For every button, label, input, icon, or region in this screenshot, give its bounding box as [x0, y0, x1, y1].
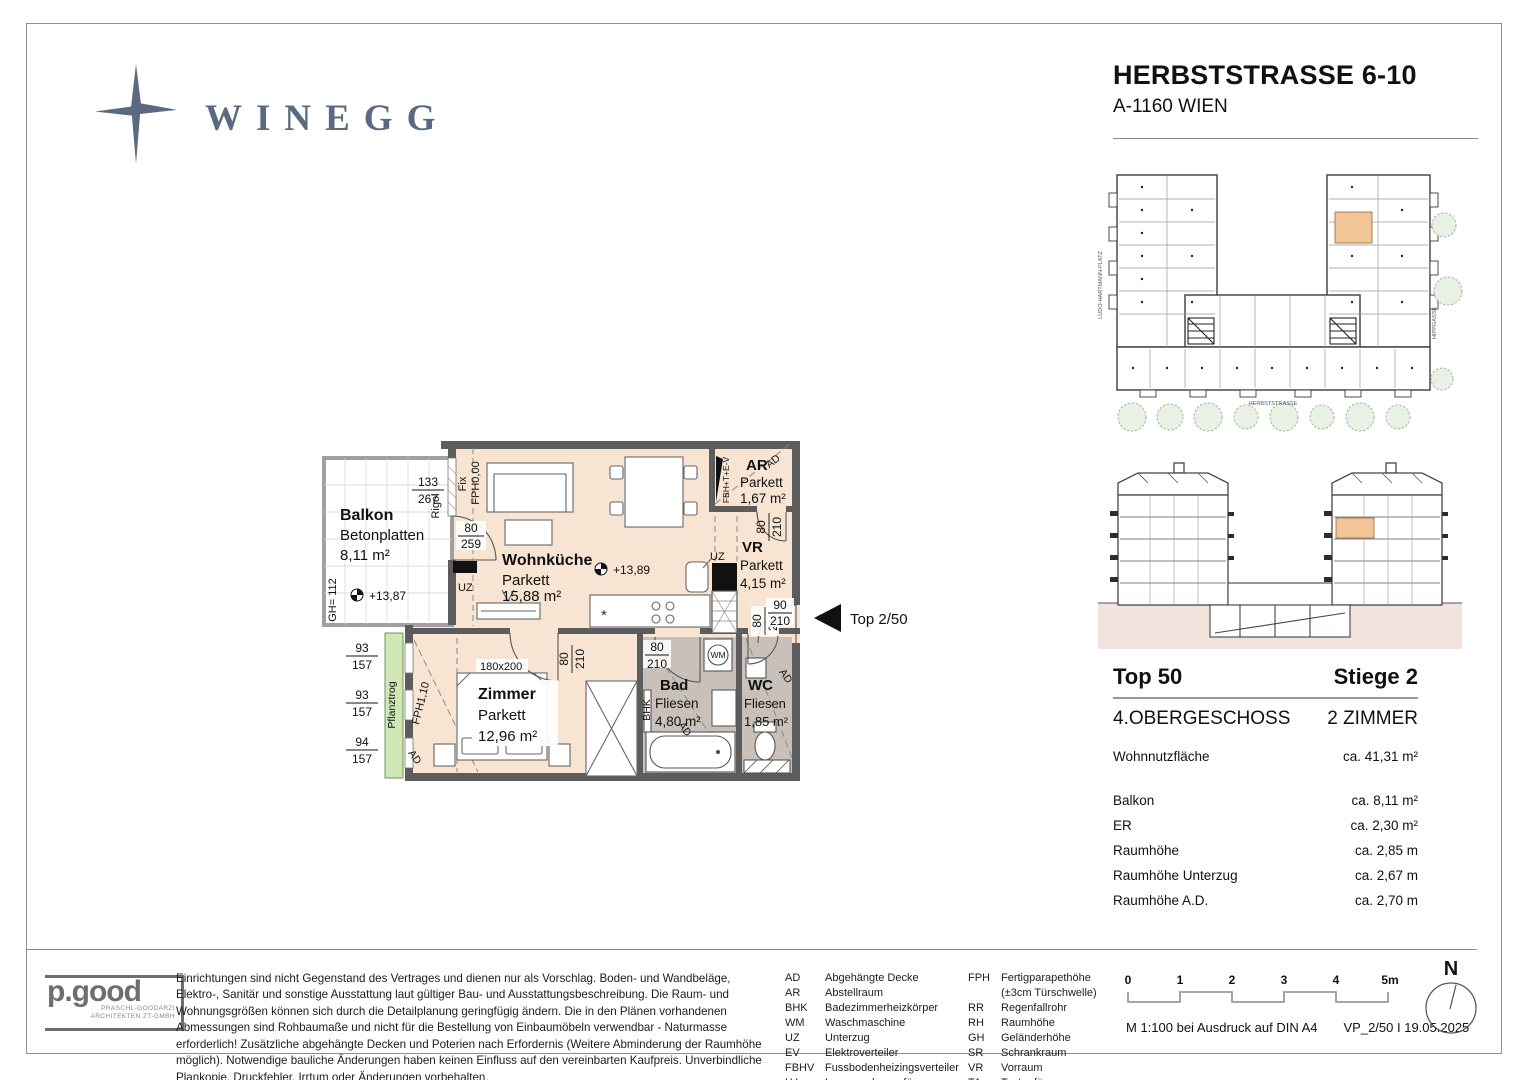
svg-text:+13,87: +13,87: [369, 589, 406, 603]
entrance-label: Top 2/50: [850, 611, 908, 628]
svg-text:93: 93: [355, 641, 369, 655]
brand-name: WINEGG: [205, 97, 449, 140]
svg-text:210: 210: [573, 649, 587, 669]
pflanztrog-label: Pflanztrog: [386, 681, 398, 728]
info-row-raumhoehe-unterzug: Raumhöhe Unterzug ca. 2,67 m: [1113, 868, 1418, 883]
bathtub: [646, 732, 735, 772]
level-marker-living: +13,89: [595, 563, 650, 577]
coffee-table: [505, 520, 552, 545]
winegg-star-icon: [95, 62, 177, 166]
dim-window-2: 93 157: [346, 688, 378, 719]
svg-text:+13,89: +13,89: [613, 563, 650, 577]
scale-bar: 0 1 2 3 4 5m: [1122, 972, 1402, 1012]
svg-text:80: 80: [754, 520, 768, 534]
winegg-logo: WINEGG: [95, 62, 449, 166]
uz-beam-2: [712, 563, 737, 591]
site-plan: LUDO-HARTMANN-PLATZ HERBSTSTRASSE HIPPGA…: [1090, 163, 1470, 448]
site-highlighted-unit: [1335, 212, 1372, 243]
info-row-wohnnutzflaeche: Wohnnutzfläche ca. 41,31 m²: [1113, 749, 1418, 764]
info-row-raumhoehe: Raumhöhe ca. 2,85 m: [1113, 843, 1418, 858]
svg-text:Parkett: Parkett: [502, 572, 550, 589]
room-count: 2 ZIMMER: [1327, 708, 1418, 730]
nightstand-right: [549, 744, 570, 766]
wardrobe: [586, 681, 637, 776]
legend-column-2: FPHFertigparapethöhe (±3cm Türschwelle) …: [968, 971, 1118, 1080]
svg-text:1,67 m²: 1,67 m²: [740, 491, 786, 506]
svg-text:Fliesen: Fliesen: [655, 696, 699, 711]
svg-text:157: 157: [352, 658, 372, 672]
section-center-wing: [1210, 583, 1350, 637]
svg-text:259: 259: [461, 537, 481, 551]
info-row-raumhoehe-ad: Raumhöhe A.D. ca. 2,70 m: [1113, 893, 1418, 908]
rigol-label: Rigol: [430, 493, 442, 518]
architect-name: p.good: [47, 979, 175, 1005]
floor-level: 4.OBERGESCHOSS: [1113, 708, 1290, 730]
kitchen-counter: [590, 595, 710, 627]
svg-text:210: 210: [647, 657, 667, 671]
svg-text:Betonplatten: Betonplatten: [340, 527, 424, 544]
fix-label: Fix: [457, 476, 469, 491]
svg-text:1: 1: [1177, 973, 1184, 987]
svg-text:0: 0: [1125, 973, 1132, 987]
svg-text:157: 157: [352, 752, 372, 766]
north-label: N: [1444, 958, 1458, 980]
footer-divider: [26, 949, 1477, 950]
kitchen-sink: [686, 559, 711, 592]
svg-text:8,11 m²: 8,11 m²: [340, 547, 390, 564]
info-row-balkon: Balkon ca. 8,11 m²: [1113, 793, 1418, 808]
svg-text:94: 94: [355, 735, 369, 749]
svg-text:12,96 m²: 12,96 m²: [478, 728, 537, 745]
shaft: [712, 591, 737, 633]
section-left-tower: [1118, 463, 1228, 605]
architect-logo: p.good PRASCHL-GOODARZI ARCHITEKTEN ZT-G…: [45, 975, 184, 1031]
dishwasher-icon: *: [601, 607, 607, 624]
svg-text:90: 90: [773, 598, 787, 612]
electro-panel-label: FBH+T+E-V: [721, 457, 731, 504]
level-marker-balcony: +13,87: [351, 589, 406, 603]
svg-text:VR: VR: [742, 539, 763, 556]
svg-text:Parkett: Parkett: [740, 475, 783, 490]
svg-text:2: 2: [1229, 973, 1236, 987]
uz-label-2: UZ: [710, 551, 725, 563]
dim-window-3: 94 157: [346, 735, 378, 766]
svg-text:93: 93: [355, 688, 369, 702]
apartment-floor-plan: *: [310, 428, 910, 803]
svg-text:Parkett: Parkett: [740, 558, 783, 573]
svg-text:4: 4: [1333, 973, 1340, 987]
title-divider: [1113, 138, 1478, 139]
street-bottom-label: HERBSTSTRASSE: [1249, 401, 1298, 407]
street-left-label: LUDO-HARTMANN-PLATZ: [1098, 250, 1104, 318]
svg-text:157: 157: [352, 705, 372, 719]
sofa: [487, 463, 573, 512]
svg-text:Zimmer: Zimmer: [478, 686, 536, 703]
svg-text:80: 80: [750, 614, 764, 628]
fph-zero-label: FPH0,00: [470, 461, 482, 504]
svg-text:210: 210: [770, 614, 790, 628]
building-section: [1090, 455, 1470, 660]
svg-text:Fliesen: Fliesen: [744, 696, 786, 711]
staircase: Stiege 2: [1334, 664, 1418, 690]
uz-label-1: UZ: [458, 582, 473, 594]
svg-text:Parkett: Parkett: [478, 707, 526, 724]
project-title: HERBSTSTRASSE 6-10: [1113, 60, 1479, 91]
svg-text:4,15 m²: 4,15 m²: [740, 576, 786, 591]
wc-shaft: [744, 760, 790, 773]
svg-text:Bad: Bad: [660, 677, 688, 694]
unit-info-table: Top 50 Stiege 2 4.OBERGESCHOSS 2 ZIMMER …: [1113, 664, 1418, 908]
plan-sheet: WINEGG HERBSTSTRASSE 6-10 A-1160 WIEN: [0, 0, 1527, 1080]
svg-text:WC: WC: [748, 677, 773, 694]
dim-window-1: 93 157: [346, 641, 378, 672]
street-right-label: HIPPGASSE: [1432, 307, 1438, 340]
svg-text:5m: 5m: [1381, 973, 1398, 987]
svg-text:80: 80: [557, 652, 571, 666]
legend-fph-note: (±3cm Türschwelle): [1001, 986, 1118, 1001]
gh-railing-label: GH= 112: [327, 578, 339, 622]
svg-text:15,88 m²: 15,88 m²: [502, 588, 561, 605]
wm-label: WM: [710, 650, 725, 660]
architect-sub2: ARCHITEKTEN ZT-GMBH: [47, 1013, 175, 1021]
svg-text:Wohnküche: Wohnküche: [502, 552, 592, 569]
svg-text:1,85 m²: 1,85 m²: [744, 714, 789, 729]
north-arrow: N: [1418, 958, 1484, 1042]
entrance-marker: Top 2/50: [814, 604, 908, 632]
washbasin: [712, 690, 736, 726]
project-location: A-1160 WIEN: [1113, 96, 1479, 118]
svg-text:80: 80: [464, 521, 478, 535]
print-scale: M 1:100 bei Ausdruck auf DIN A4: [1126, 1020, 1318, 1035]
fix-window: [448, 458, 456, 516]
bed-size-label: 180x200: [480, 661, 522, 673]
svg-text:Balkon: Balkon: [340, 507, 393, 524]
legend-column-1: ADAbgehängte Decke ARAbstellraum BHKBade…: [785, 971, 965, 1080]
wc-basin: [746, 658, 766, 678]
svg-text:210: 210: [770, 517, 784, 537]
section-highlighted-unit: [1336, 518, 1374, 538]
unit-number: Top 50: [1113, 664, 1182, 690]
bhk-label: BHK: [641, 699, 653, 721]
svg-text:3: 3: [1281, 973, 1288, 987]
uz-beam-1: [453, 561, 477, 573]
svg-text:133: 133: [418, 475, 438, 489]
dim-bad-door: 80 210: [643, 640, 671, 671]
dim-entry-door: 90 210: [766, 598, 794, 628]
info-row-er: ER ca. 2,30 m²: [1113, 818, 1418, 833]
legal-disclaimer: Einrichtungen sind nicht Gegenstand des …: [176, 971, 776, 1080]
project-title-block: HERBSTSTRASSE 6-10 A-1160 WIEN: [1113, 60, 1479, 118]
svg-text:80: 80: [650, 640, 664, 654]
dim-fix-window: 80 259: [456, 521, 486, 551]
nightstand-left: [434, 744, 455, 766]
